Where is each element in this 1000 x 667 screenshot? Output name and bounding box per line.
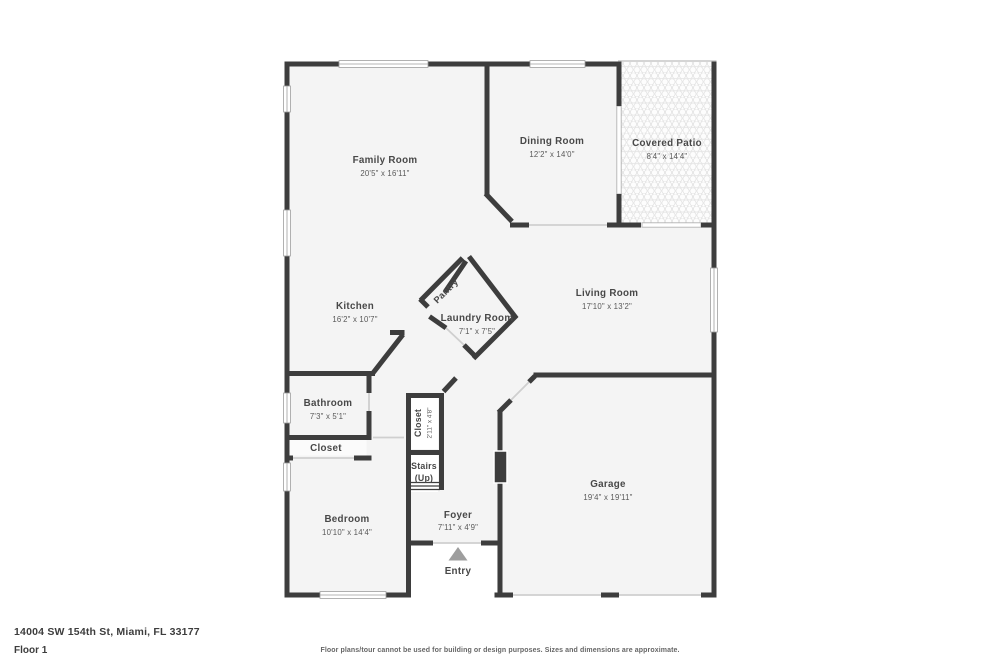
stairs-direction: (Up) <box>415 473 433 483</box>
window <box>711 268 718 332</box>
window <box>530 61 585 68</box>
floor-plan-drawing: Family Room 20'5" x 16'11" Dining Room 1… <box>0 0 1000 667</box>
stairs-name: Stairs <box>411 461 437 471</box>
bedroom-dims: 10'10" x 14'4" <box>322 528 372 537</box>
kitchen-name: Kitchen <box>336 301 374 312</box>
foyer-dims: 7'11" x 4'9" <box>438 523 478 532</box>
bathroom-name: Bathroom <box>304 398 353 409</box>
garage-name: Garage <box>590 479 626 490</box>
entry-name: Entry <box>445 566 472 577</box>
window <box>339 61 428 68</box>
hall-closet-name: Closet <box>310 443 342 454</box>
kitchen-dims: 16'2" x 10'7" <box>332 315 377 324</box>
dining-room-name: Dining Room <box>520 136 584 147</box>
foyer-closet-dims: 2'11" x 4'8" <box>427 407 434 438</box>
covered-patio-dims: 8'4" x 14'4" <box>647 152 688 161</box>
bathroom-dims: 7'3" x 5'1" <box>310 412 346 421</box>
foyer-closet-name: Closet <box>413 409 423 437</box>
laundry-room-dims: 7'1" x 7'5" <box>459 327 495 336</box>
bedroom-name: Bedroom <box>324 514 369 525</box>
dining-room-dims: 12'2" x 14'0" <box>529 150 574 159</box>
window <box>284 393 291 423</box>
covered-patio-name: Covered Patio <box>632 138 702 149</box>
floor-plan-page: Family Room 20'5" x 16'11" Dining Room 1… <box>0 0 1000 667</box>
garage-dims: 19'4" x 19'11" <box>583 493 632 502</box>
window <box>284 463 291 491</box>
foyer-name: Foyer <box>444 510 472 521</box>
entry-arrow-icon <box>449 547 468 561</box>
patio-rear-slider-door <box>642 223 701 227</box>
family-room-name: Family Room <box>353 155 418 166</box>
property-address: 14004 SW 154th St, Miami, FL 33177 <box>14 626 200 638</box>
window <box>284 210 291 256</box>
living-room-name: Living Room <box>576 288 639 299</box>
room-label-hall-closet: Closet <box>310 443 342 454</box>
garage-door-leaf <box>494 451 507 483</box>
family-room-dims: 20'5" x 16'11" <box>360 169 409 178</box>
window <box>284 86 291 112</box>
laundry-room-name: Laundry Room <box>441 313 514 324</box>
room-label-entry: Entry <box>445 566 472 577</box>
living-room-dims: 17'10" x 13'2" <box>582 302 632 311</box>
patio-slider-door <box>617 106 621 194</box>
window <box>320 592 386 599</box>
disclaimer-text: Floor plans/tour cannot be used for buil… <box>0 647 1000 654</box>
